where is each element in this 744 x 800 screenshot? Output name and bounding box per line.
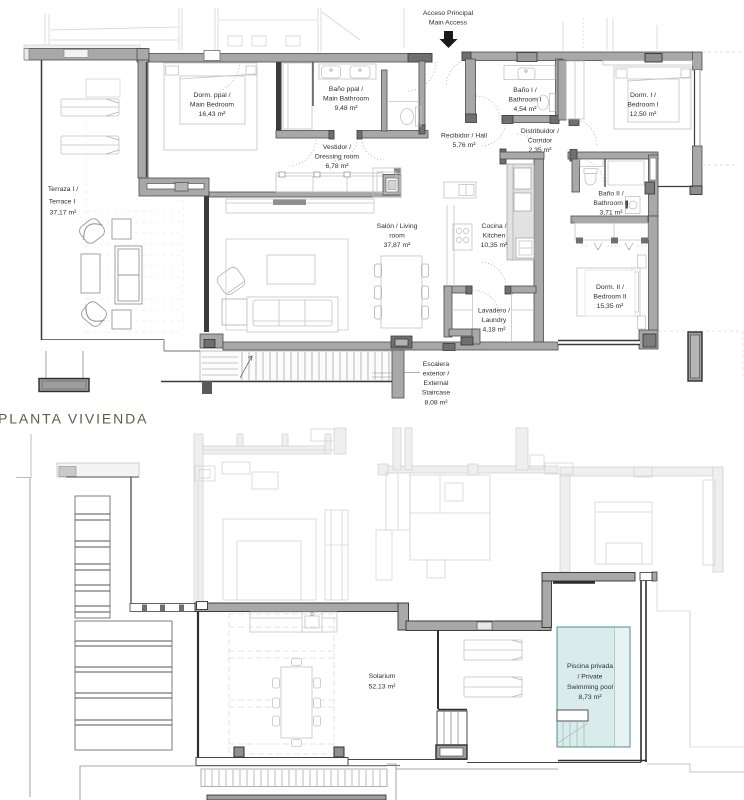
svg-text:exterior /: exterior / xyxy=(423,371,450,378)
svg-text:Baño II /: Baño II / xyxy=(598,191,623,198)
svg-text:Distribuidor /: Distribuidor / xyxy=(521,128,559,135)
svg-text:Lavadero /: Lavadero / xyxy=(478,308,510,315)
svg-text:Main Bathroom: Main Bathroom xyxy=(323,96,369,103)
svg-text:37,87 m²: 37,87 m² xyxy=(384,242,412,249)
svg-text:Dorm. II /: Dorm. II / xyxy=(596,284,624,291)
svg-text:PLANTA VIVIENDA: PLANTA VIVIENDA xyxy=(0,411,148,427)
svg-text:/ Private: / Private xyxy=(578,674,603,681)
svg-text:Bedroom I: Bedroom I xyxy=(627,102,658,109)
svg-text:Dressing room: Dressing room xyxy=(315,154,360,161)
svg-text:8,08 m²: 8,08 m² xyxy=(424,400,448,407)
svg-text:Baño ppal /: Baño ppal / xyxy=(329,86,364,93)
svg-text:Main Bedroom: Main Bedroom xyxy=(190,102,235,109)
svg-text:Solarium: Solarium xyxy=(369,673,396,680)
svg-text:6,78 m²: 6,78 m² xyxy=(325,163,349,170)
svg-text:Corridor: Corridor xyxy=(528,138,553,145)
svg-text:Escalera: Escalera xyxy=(423,361,450,368)
svg-text:8,73 m²: 8,73 m² xyxy=(578,694,602,701)
svg-text:Bathroom II: Bathroom II xyxy=(593,200,628,207)
svg-text:Staircase: Staircase xyxy=(422,390,451,397)
svg-text:Baño I /: Baño I / xyxy=(513,87,537,94)
svg-text:15,35 m²: 15,35 m² xyxy=(597,303,625,310)
svg-text:Acceso Principal: Acceso Principal xyxy=(423,10,474,17)
svg-text:3,71 m²: 3,71 m² xyxy=(599,210,623,217)
svg-text:Swimming pool: Swimming pool xyxy=(567,684,614,691)
svg-text:4,54 m²: 4,54 m² xyxy=(513,106,537,113)
svg-text:Piscina privada: Piscina privada xyxy=(567,663,613,670)
svg-text:9,48 m²: 9,48 m² xyxy=(334,105,358,112)
svg-text:Salón / Living: Salón / Living xyxy=(377,223,418,230)
svg-text:External: External xyxy=(424,380,449,387)
svg-text:room: room xyxy=(389,233,405,240)
svg-text:Cocina /: Cocina / xyxy=(482,223,507,230)
svg-text:Terraza I /: Terraza I / xyxy=(48,186,78,193)
svg-text:Main Access: Main Access xyxy=(429,20,468,27)
svg-text:37,17 m²: 37,17 m² xyxy=(50,210,78,217)
svg-text:Bathroom I: Bathroom I xyxy=(508,97,541,104)
svg-text:16,43 m²: 16,43 m² xyxy=(199,111,227,118)
svg-text:Laundry: Laundry xyxy=(482,317,507,324)
svg-text:Vestidor /: Vestidor / xyxy=(323,144,351,151)
svg-text:5,76 m²: 5,76 m² xyxy=(452,142,476,149)
svg-text:Terrace I: Terrace I xyxy=(49,199,76,206)
svg-text:12,50 m²: 12,50 m² xyxy=(630,111,658,118)
svg-text:Dorm. I /: Dorm. I / xyxy=(630,92,656,99)
svg-text:4,18 m²: 4,18 m² xyxy=(482,327,506,334)
svg-text:10,35 m²: 10,35 m² xyxy=(481,242,509,249)
svg-text:Dorm. ppal /: Dorm. ppal / xyxy=(193,92,230,99)
svg-text:2,35 m²: 2,35 m² xyxy=(528,147,552,154)
svg-text:Recibidor / Hall: Recibidor / Hall xyxy=(441,133,488,140)
svg-text:Kitchen: Kitchen xyxy=(483,233,506,240)
svg-text:52,13 m²: 52,13 m² xyxy=(369,684,397,691)
svg-text:Bedroom II: Bedroom II xyxy=(593,294,626,301)
